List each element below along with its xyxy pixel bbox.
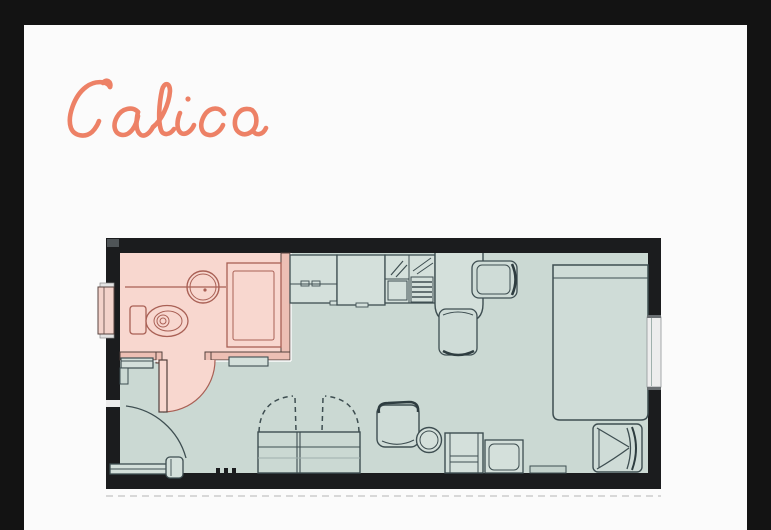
letter-a-tail <box>136 112 153 136</box>
stool <box>485 440 523 473</box>
kitchen-sink <box>385 255 435 303</box>
kitchen-counter <box>337 255 385 307</box>
bed <box>553 265 648 420</box>
kitchen-cabinet <box>290 255 342 305</box>
floorplan <box>90 230 670 500</box>
letter-l <box>153 84 174 134</box>
letter-c <box>201 109 224 136</box>
shower <box>227 263 281 347</box>
page-background: { "title": "Calico", "colors": { "backgr… <box>0 0 771 530</box>
shower-threshold <box>229 357 268 366</box>
side-table <box>417 428 442 453</box>
page-title: Calico <box>64 74 294 150</box>
letter-i <box>178 113 195 134</box>
dining-chair-bottom <box>439 309 477 355</box>
toilet <box>130 306 188 337</box>
door-frame-gap <box>106 400 120 407</box>
wall-corner-cap <box>107 239 119 247</box>
door-handle <box>166 457 183 478</box>
letter-i-dot <box>185 96 190 101</box>
floorplan-card: Calico <box>24 25 747 530</box>
window-right <box>647 315 661 390</box>
dining-chair-top <box>472 261 517 298</box>
bathroom-wall-right <box>281 253 290 360</box>
armchair <box>593 424 642 472</box>
window-left <box>98 283 114 338</box>
letter-C <box>70 82 110 135</box>
floor-mat <box>530 466 566 473</box>
desk-unit <box>445 433 483 473</box>
lounge-chair <box>377 402 419 447</box>
title-script-drawing <box>64 74 294 150</box>
